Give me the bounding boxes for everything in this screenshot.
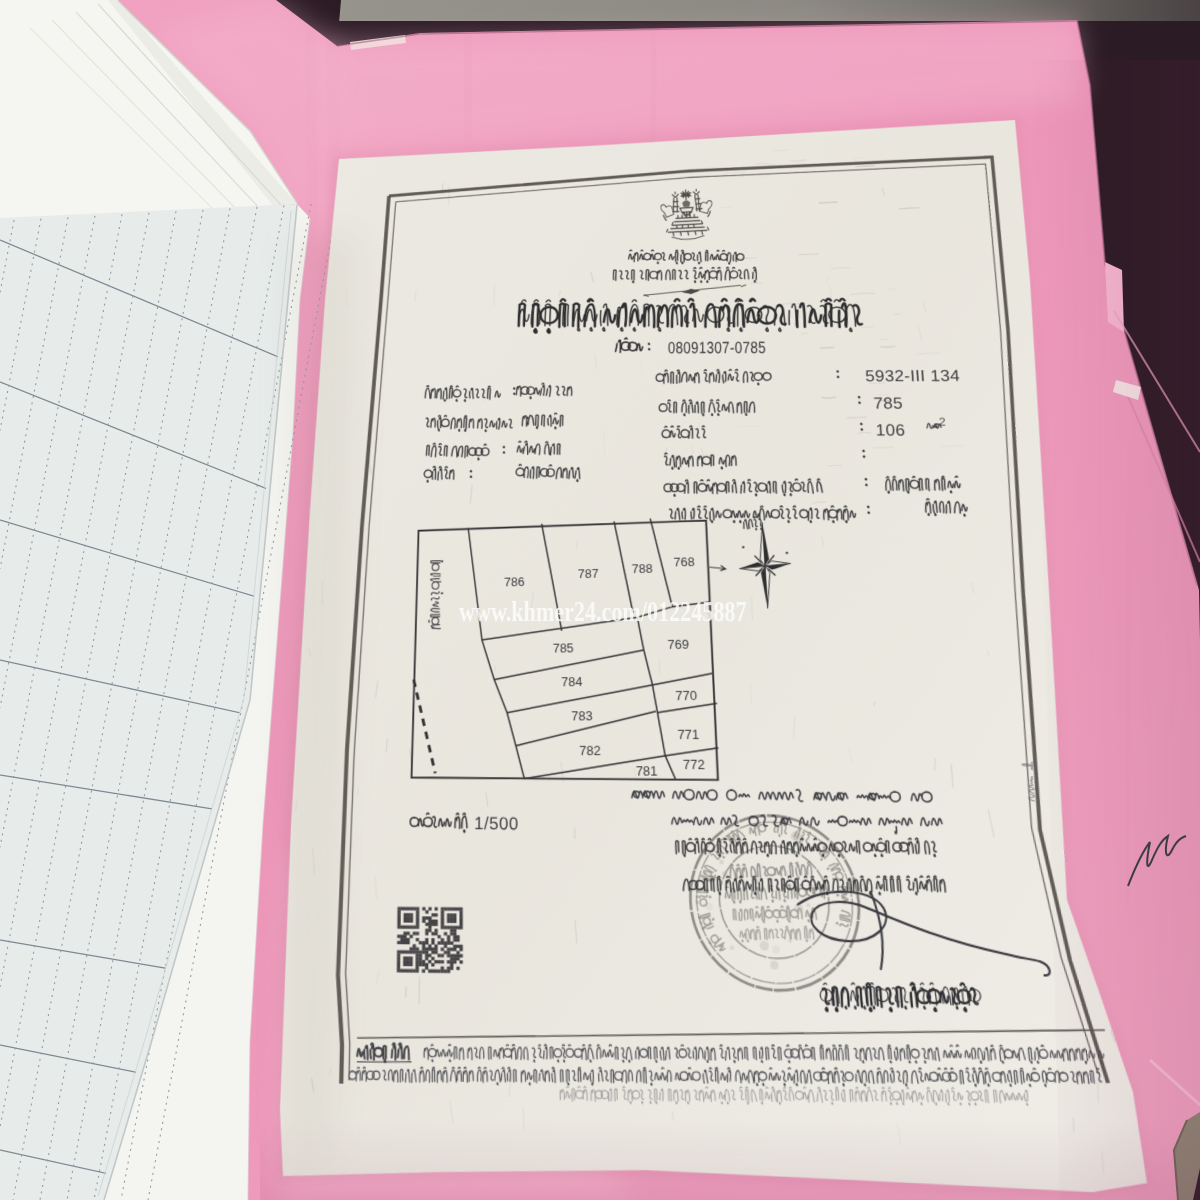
svg-text:787: 787 <box>578 568 599 582</box>
svg-text:788: 788 <box>632 563 654 577</box>
svg-text:783: 783 <box>571 710 593 724</box>
svg-text:772: 772 <box>683 759 706 774</box>
svg-text:770: 770 <box>675 690 698 704</box>
svg-text:5932-III 134: 5932-III 134 <box>865 366 961 385</box>
svg-text:2: 2 <box>939 416 946 429</box>
svg-text:08091307-0785: 08091307-0785 <box>668 338 766 357</box>
svg-text:781: 781 <box>636 765 659 780</box>
svg-text:785: 785 <box>553 642 575 656</box>
svg-text:768: 768 <box>673 556 695 570</box>
svg-text:786: 786 <box>504 576 525 590</box>
svg-text:784: 784 <box>561 676 583 690</box>
svg-text:785: 785 <box>873 393 903 412</box>
svg-text:1/500: 1/500 <box>474 813 519 833</box>
svg-text:782: 782 <box>579 745 601 759</box>
svg-text:106: 106 <box>875 420 906 439</box>
svg-text:769: 769 <box>667 639 689 653</box>
svg-text:771: 771 <box>677 729 700 743</box>
